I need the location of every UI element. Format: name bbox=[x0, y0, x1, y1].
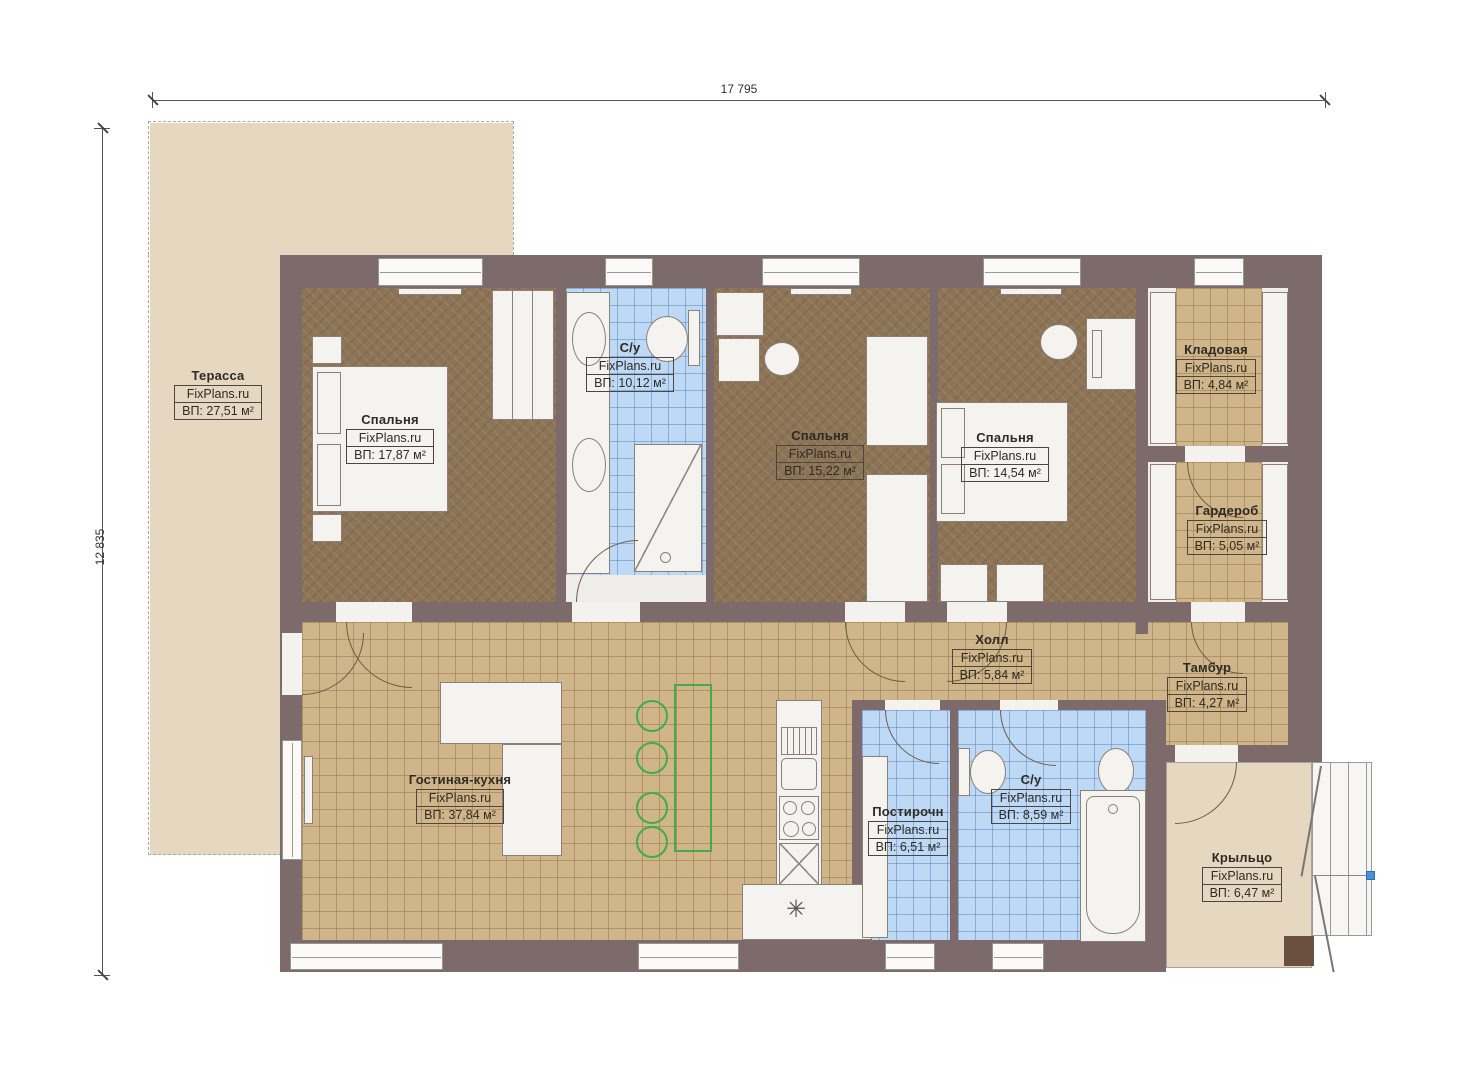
radiator-symbol bbox=[304, 756, 313, 824]
brand-watermark: FixPlans.ru bbox=[347, 430, 433, 447]
desk-symbol bbox=[718, 338, 760, 382]
brand-watermark: FixPlans.ru bbox=[953, 650, 1032, 667]
shower-drain-symbol bbox=[660, 552, 671, 563]
bathtub-drain-symbol bbox=[1108, 804, 1118, 814]
brand-watermark: FixPlans.ru bbox=[992, 790, 1071, 807]
fridge-snowflake-icon: ✳ bbox=[778, 892, 814, 928]
single-bed-symbol bbox=[866, 474, 928, 602]
exterior-wall-left bbox=[280, 255, 302, 972]
stove-burner-icon bbox=[783, 801, 797, 815]
brand-watermark: FixPlans.ru bbox=[175, 386, 261, 403]
room-name: Холл bbox=[932, 632, 1052, 647]
door-opening bbox=[572, 602, 640, 622]
brand-watermark: FixPlans.ru bbox=[869, 822, 948, 839]
room-label-wardrobe: Гардероб FixPlans.ruВП: 5,05 м² bbox=[1167, 503, 1287, 555]
room-area: ВП: 4,84 м² bbox=[1177, 377, 1256, 393]
brand-watermark: FixPlans.ru bbox=[587, 358, 673, 375]
porch-pillar bbox=[1284, 936, 1314, 966]
room-area: ВП: 8,59 м² bbox=[992, 807, 1071, 823]
room-area: ВП: 37,84 м² bbox=[417, 807, 503, 823]
door-opening bbox=[336, 602, 412, 622]
cabinet-symbol bbox=[716, 292, 764, 336]
interior-wall bbox=[556, 288, 566, 602]
radiator-symbol bbox=[1000, 288, 1062, 295]
dish-rack-symbol bbox=[781, 727, 817, 755]
dresser-symbol bbox=[996, 564, 1044, 602]
front-door-opening bbox=[1175, 745, 1238, 762]
room-label-laundry: Постирочн FixPlans.ruВП: 6,51 м² bbox=[848, 804, 968, 856]
room-area: ВП: 27,51 м² bbox=[175, 403, 261, 419]
room-label-vestibule: Тамбур FixPlans.ruВП: 4,27 м² bbox=[1145, 660, 1269, 712]
room-name: Спальня bbox=[945, 430, 1065, 445]
window bbox=[605, 258, 653, 286]
terrace-boundary bbox=[148, 255, 281, 855]
dimension-width-label: 17 795 bbox=[697, 82, 781, 96]
room-area: ВП: 10,12 м² bbox=[587, 375, 673, 391]
window bbox=[378, 258, 483, 286]
room-area: ВП: 5,84 м² bbox=[953, 667, 1032, 683]
room-area: ВП: 15,22 м² bbox=[777, 463, 863, 479]
door-opening bbox=[947, 602, 1007, 622]
terrace-door-opening bbox=[282, 633, 302, 695]
room-name: Кладовая bbox=[1156, 342, 1276, 357]
room-area: ВП: 17,87 м² bbox=[347, 447, 433, 463]
dishwasher-symbol bbox=[779, 843, 819, 885]
door-opening bbox=[885, 700, 940, 710]
room-label-bathroom-bottom: С/у FixPlans.ruВП: 8,59 м² bbox=[971, 772, 1091, 824]
window bbox=[983, 258, 1081, 286]
dimension-line-top bbox=[152, 100, 1325, 101]
room-label-living-kitchen: Гостиная-кухня FixPlans.ruВП: 37,84 м² bbox=[395, 772, 525, 824]
monitor-symbol bbox=[1092, 330, 1102, 378]
brand-watermark: FixPlans.ru bbox=[1188, 521, 1267, 538]
dresser-symbol bbox=[940, 564, 988, 602]
interior-wall bbox=[1136, 288, 1148, 634]
dimension-height-label: 12 835 bbox=[93, 505, 107, 589]
room-name: Терасса bbox=[158, 368, 278, 383]
floor-plan: ✳ Терасса FixPlans.ruВП: 27,51 м² Спальн… bbox=[0, 0, 1474, 1080]
sink-symbol bbox=[1098, 748, 1134, 794]
room-label-terrace: Терасса FixPlans.ruВП: 27,51 м² bbox=[158, 368, 278, 420]
dining-table-symbol bbox=[674, 684, 712, 852]
room-name: Крыльцо bbox=[1182, 850, 1302, 865]
room-label-bedroom-2: Спальня FixPlans.ruВП: 15,22 м² bbox=[760, 428, 880, 480]
room-name: Спальня bbox=[760, 428, 880, 443]
dining-chair-symbol bbox=[636, 700, 668, 732]
nightstand-symbol bbox=[312, 336, 342, 364]
room-name: С/у bbox=[971, 772, 1091, 787]
room-label-bedroom-1: Спальня FixPlans.ruВП: 17,87 м² bbox=[330, 412, 450, 464]
room-label-porch: Крыльцо FixPlans.ruВП: 6,47 м² bbox=[1182, 850, 1302, 902]
stove-burner-icon bbox=[783, 821, 799, 837]
dining-chair-symbol bbox=[636, 826, 668, 858]
room-name: Спальня bbox=[330, 412, 450, 427]
nightstand-symbol bbox=[312, 514, 342, 542]
room-name: Постирочн bbox=[848, 804, 968, 819]
brand-watermark: FixPlans.ru bbox=[1203, 868, 1282, 885]
room-label-storage: Кладовая FixPlans.ruВП: 4,84 м² bbox=[1156, 342, 1276, 394]
door-opening bbox=[1191, 602, 1245, 622]
window bbox=[638, 943, 739, 970]
bathtub-inner-symbol bbox=[1086, 796, 1140, 934]
room-name: Гостиная-кухня bbox=[395, 772, 525, 787]
window-panoramic bbox=[290, 943, 443, 970]
kitchen-sink-symbol bbox=[781, 758, 817, 790]
brand-watermark: FixPlans.ru bbox=[417, 790, 503, 807]
radiator-symbol bbox=[790, 288, 852, 295]
room-label-bathroom-top: С/у FixPlans.ruВП: 10,12 м² bbox=[570, 340, 690, 392]
brand-watermark: FixPlans.ru bbox=[962, 448, 1048, 465]
interior-wall bbox=[706, 288, 714, 602]
room-area: ВП: 4,27 м² bbox=[1168, 695, 1247, 711]
dining-chair-symbol bbox=[636, 742, 668, 774]
terrace-boundary bbox=[148, 121, 514, 255]
marker-line bbox=[1312, 875, 1368, 876]
window bbox=[282, 740, 302, 860]
room-area: ВП: 6,47 м² bbox=[1203, 885, 1282, 901]
window bbox=[885, 943, 935, 970]
interior-wall bbox=[1146, 700, 1166, 940]
window bbox=[1194, 258, 1244, 286]
brand-watermark: FixPlans.ru bbox=[1168, 678, 1247, 695]
door-opening bbox=[1000, 700, 1058, 710]
window bbox=[992, 943, 1044, 970]
radiator-symbol bbox=[398, 288, 462, 295]
stove-symbol bbox=[779, 796, 819, 840]
chair-symbol bbox=[764, 342, 800, 376]
wardrobe-cabinet-symbol bbox=[492, 290, 554, 420]
chair-symbol bbox=[1040, 324, 1078, 360]
room-label-hall: Холл FixPlans.ruВП: 5,84 м² bbox=[932, 632, 1052, 684]
toilet-tank-symbol bbox=[958, 748, 970, 796]
brand-watermark: FixPlans.ru bbox=[777, 446, 863, 463]
room-name: Гардероб bbox=[1167, 503, 1287, 518]
room-area: ВП: 6,51 м² bbox=[869, 839, 948, 855]
brand-watermark: FixPlans.ru bbox=[1177, 360, 1256, 377]
blue-node-marker bbox=[1366, 871, 1375, 880]
room-name: С/у bbox=[570, 340, 690, 355]
room-area: ВП: 5,05 м² bbox=[1188, 538, 1267, 554]
room-name: Тамбур bbox=[1145, 660, 1269, 675]
exterior-wall-right bbox=[1288, 255, 1322, 762]
stove-burner-icon bbox=[801, 801, 815, 815]
window bbox=[762, 258, 860, 286]
sink-symbol bbox=[572, 438, 606, 492]
stove-burner-icon bbox=[802, 822, 816, 836]
room-label-bedroom-3: Спальня FixPlans.ruВП: 14,54 м² bbox=[945, 430, 1065, 482]
room-area: ВП: 14,54 м² bbox=[962, 465, 1048, 481]
door-opening bbox=[845, 602, 905, 622]
dining-chair-symbol bbox=[636, 792, 668, 824]
sofa-symbol bbox=[440, 682, 562, 744]
door-opening bbox=[1185, 446, 1245, 462]
